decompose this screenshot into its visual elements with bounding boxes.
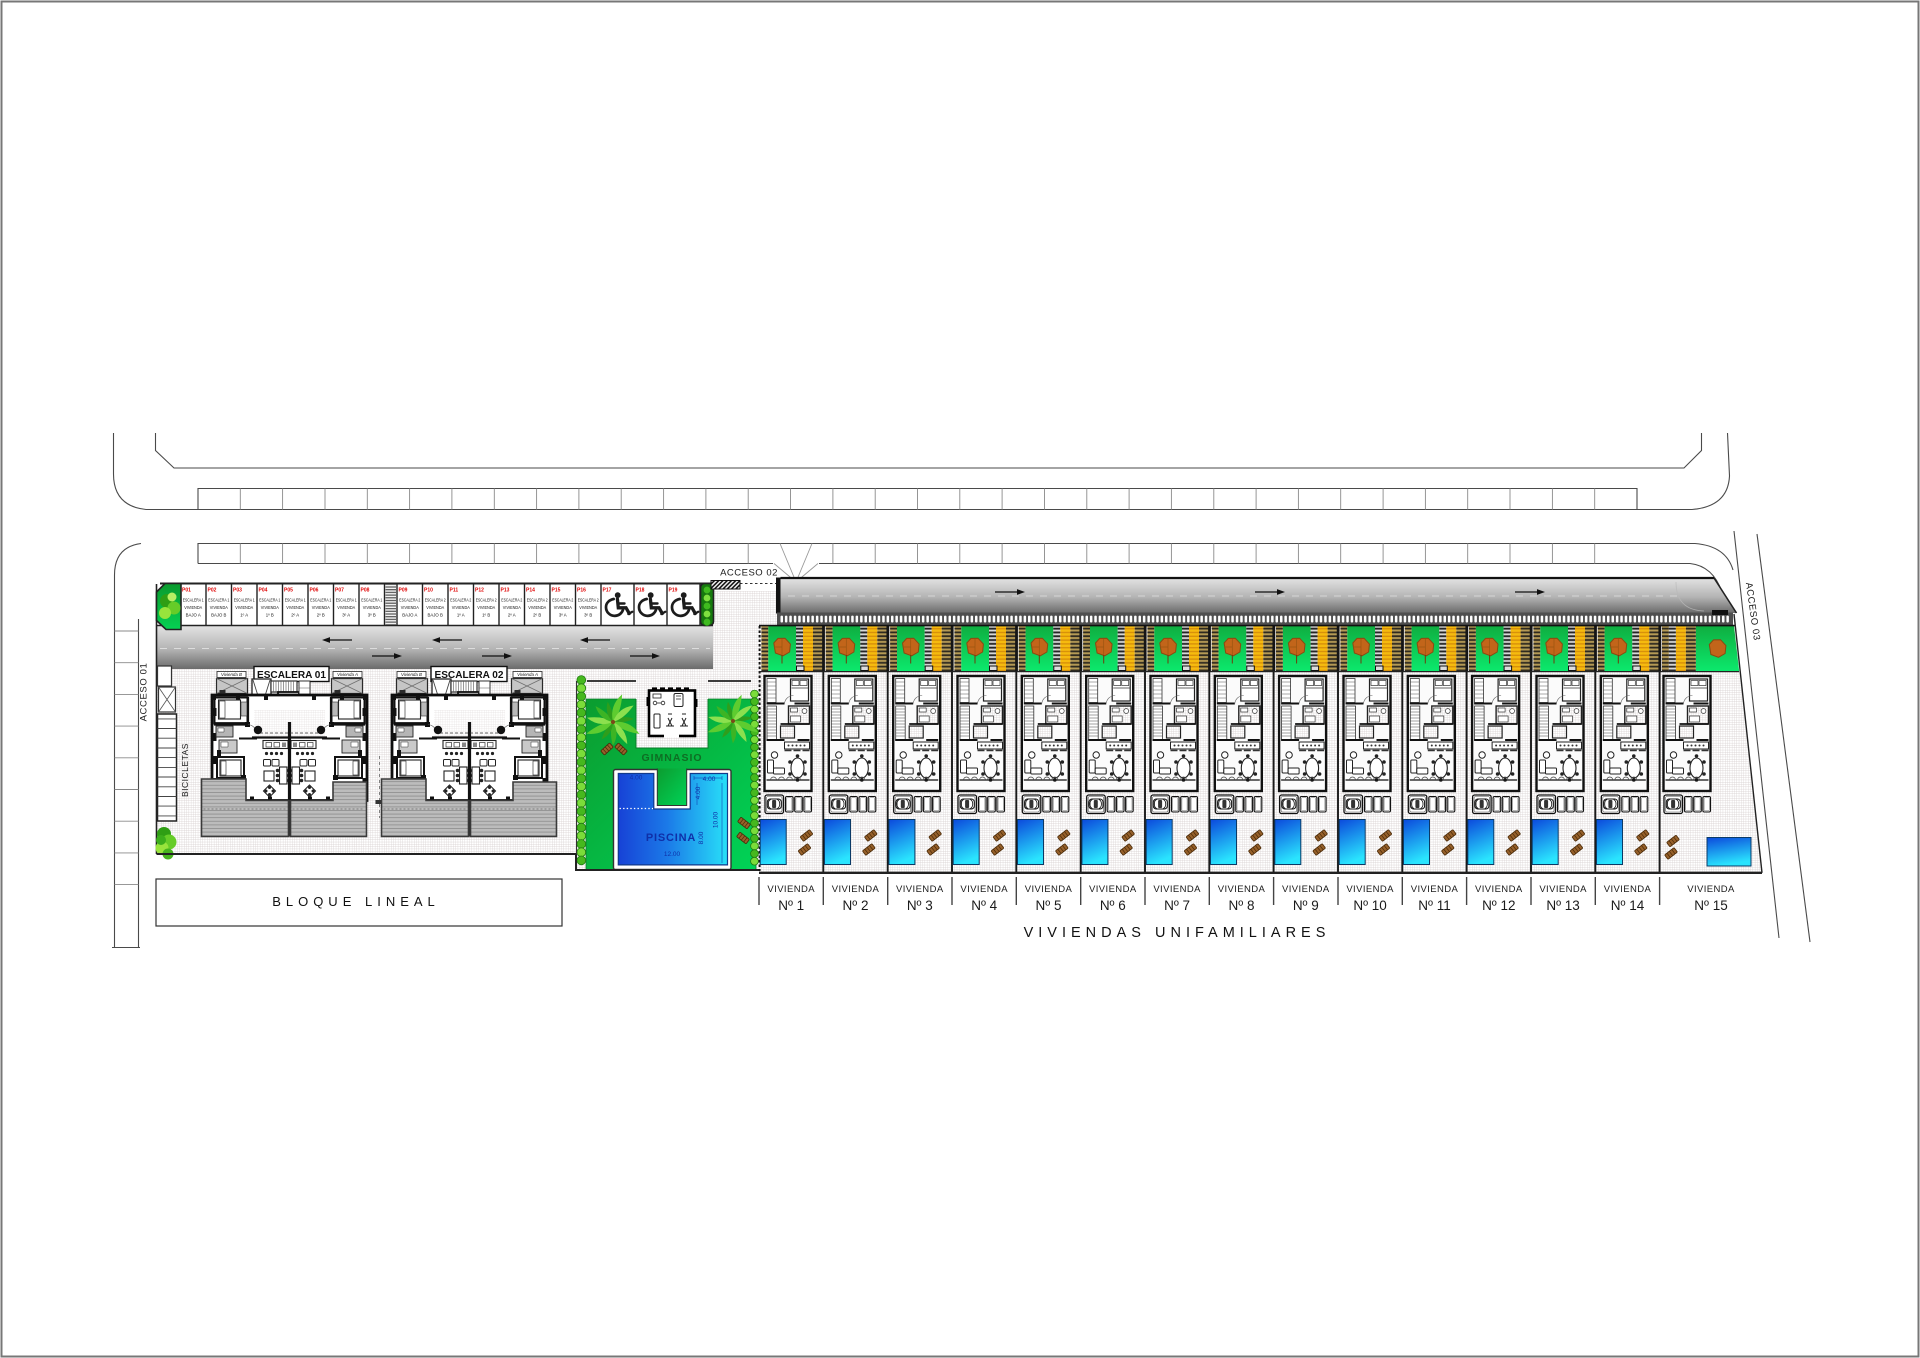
svg-text:1º B: 1º B (266, 613, 274, 618)
svg-text:VIVIENDA: VIVIENDA (503, 605, 521, 610)
svg-text:Nº 11: Nº 11 (1418, 898, 1450, 913)
svg-text:ESCALERA 1: ESCALERA 1 (336, 598, 357, 603)
svg-text:Vivienda A: Vivienda A (337, 672, 358, 677)
svg-text:ESCALERA 2: ESCALERA 2 (578, 598, 599, 603)
svg-text:VIVIENDA: VIVIENDA (184, 605, 202, 610)
svg-text:PISCINA: PISCINA (646, 832, 696, 844)
svg-text:ESCALERA 1: ESCALERA 1 (285, 598, 306, 603)
svg-text:Nº 5: Nº 5 (1036, 898, 1062, 913)
svg-text:VIVIENDA: VIVIENDA (452, 605, 470, 610)
svg-text:3º B: 3º B (584, 613, 592, 618)
svg-text:ESCALERA 1: ESCALERA 1 (259, 598, 280, 603)
svg-text:P16: P16 (577, 588, 586, 594)
svg-text:VIVIENDA: VIVIENDA (363, 605, 381, 610)
svg-text:VIVIENDA: VIVIENDA (261, 605, 279, 610)
svg-text:4.00: 4.00 (630, 775, 643, 782)
svg-text:P02: P02 (208, 588, 217, 594)
svg-text:VIVIENDA: VIVIENDA (528, 605, 546, 610)
svg-text:Vivienda B: Vivienda B (221, 672, 242, 677)
svg-text:VIVIENDA: VIVIENDA (312, 605, 330, 610)
svg-text:VIVIENDA: VIVIENDA (286, 605, 304, 610)
svg-text:ESCALERA 1: ESCALERA 1 (234, 598, 255, 603)
svg-text:VIVIENDA: VIVIENDA (1411, 884, 1459, 895)
svg-text:Nº 3: Nº 3 (907, 898, 933, 913)
svg-text:Nº 13: Nº 13 (1546, 898, 1579, 913)
svg-text:ESCALERA 2: ESCALERA 2 (425, 598, 446, 603)
svg-text:3º A: 3º A (559, 613, 567, 618)
svg-text:Nº 2: Nº 2 (843, 898, 869, 913)
svg-text:10.00: 10.00 (713, 811, 720, 828)
svg-text:VIVIENDA: VIVIENDA (554, 605, 572, 610)
svg-text:VIVIENDA: VIVIENDA (401, 605, 419, 610)
svg-text:ACCESO 02: ACCESO 02 (720, 568, 778, 579)
svg-text:P19: P19 (669, 588, 678, 594)
svg-text:VIVIENDA: VIVIENDA (767, 884, 815, 895)
svg-text:BICICLETAS: BICICLETAS (180, 743, 190, 797)
svg-text:BAJO B: BAJO B (428, 613, 443, 618)
svg-text:ESCALERA 2: ESCALERA 2 (527, 598, 548, 603)
svg-text:VIVIENDA: VIVIENDA (1687, 884, 1735, 895)
svg-text:VIVIENDA: VIVIENDA (426, 605, 444, 610)
svg-text:VIVIENDAS UNIFAMILIARES: VIVIENDAS UNIFAMILIARES (1024, 925, 1331, 941)
svg-text:P13: P13 (501, 588, 510, 594)
svg-text:P11: P11 (450, 588, 459, 594)
svg-text:P08: P08 (361, 588, 370, 594)
svg-text:Nº 14: Nº 14 (1611, 898, 1645, 913)
svg-text:BAJO A: BAJO A (402, 613, 417, 618)
svg-text:BLOQUE LINEAL: BLOQUE LINEAL (272, 894, 440, 909)
svg-text:P18: P18 (636, 588, 645, 594)
svg-text:VIVIENDA: VIVIENDA (1153, 884, 1201, 895)
svg-text:P07: P07 (335, 588, 344, 594)
svg-text:VIVIENDA: VIVIENDA (210, 605, 228, 610)
svg-text:Nº 12: Nº 12 (1482, 898, 1515, 913)
svg-text:Vivienda A: Vivienda A (517, 672, 538, 677)
svg-text:3º B: 3º B (368, 613, 376, 618)
svg-text:P04: P04 (259, 588, 268, 594)
svg-text:Nº 15: Nº 15 (1694, 898, 1727, 913)
svg-text:Nº 4: Nº 4 (971, 898, 997, 913)
svg-text:1º A: 1º A (240, 613, 248, 618)
svg-text:P01: P01 (182, 588, 191, 594)
svg-text:VIVIENDA: VIVIENDA (1089, 884, 1137, 895)
svg-text:2º B: 2º B (533, 613, 541, 618)
svg-text:Nº 10: Nº 10 (1353, 898, 1386, 913)
svg-text:Nº 8: Nº 8 (1229, 898, 1255, 913)
svg-text:ESCALERA 1: ESCALERA 1 (361, 598, 382, 603)
svg-text:VIVIENDA: VIVIENDA (1539, 884, 1587, 895)
svg-text:BAJO A: BAJO A (186, 613, 201, 618)
svg-text:P09: P09 (399, 588, 408, 594)
svg-text:4.00: 4.00 (703, 776, 716, 783)
svg-text:ACCESO 01: ACCESO 01 (139, 663, 150, 722)
svg-text:BAJO B: BAJO B (211, 613, 226, 618)
svg-text:VIVIENDA: VIVIENDA (337, 605, 355, 610)
svg-text:VIVIENDA: VIVIENDA (1346, 884, 1394, 895)
svg-text:ESCALERA 1: ESCALERA 1 (208, 598, 229, 603)
svg-text:12.00: 12.00 (664, 851, 681, 858)
svg-text:VIVIENDA: VIVIENDA (1475, 884, 1523, 895)
svg-text:ESCALERA 2: ESCALERA 2 (552, 598, 573, 603)
svg-text:P05: P05 (284, 588, 293, 594)
svg-text:2º A: 2º A (508, 613, 516, 618)
svg-text:VIVIENDA: VIVIENDA (1604, 884, 1652, 895)
svg-text:VIVIENDA: VIVIENDA (1282, 884, 1330, 895)
svg-text:8.00: 8.00 (698, 831, 705, 844)
svg-text:VIVIENDA: VIVIENDA (960, 884, 1008, 895)
svg-text:P12: P12 (475, 588, 484, 594)
svg-text:P03: P03 (233, 588, 242, 594)
svg-text:Nº 6: Nº 6 (1100, 898, 1126, 913)
svg-text:VIVIENDA: VIVIENDA (896, 884, 944, 895)
svg-text:Nº 7: Nº 7 (1164, 898, 1190, 913)
svg-text:VIVIENDA: VIVIENDA (1218, 884, 1266, 895)
svg-text:Vivienda B: Vivienda B (401, 672, 422, 677)
svg-text:P14: P14 (526, 588, 535, 594)
svg-text:Nº 1: Nº 1 (778, 898, 804, 913)
svg-text:ESCALERA 1: ESCALERA 1 (310, 598, 331, 603)
svg-text:VIVIENDA: VIVIENDA (235, 605, 253, 610)
svg-text:ESCALERA 2: ESCALERA 2 (501, 598, 522, 603)
svg-text:P06: P06 (310, 588, 319, 594)
svg-text:ESCALERA 2: ESCALERA 2 (399, 598, 420, 603)
svg-text:1º A: 1º A (457, 613, 465, 618)
svg-text:VIVIENDA: VIVIENDA (832, 884, 880, 895)
svg-text:Nº 9: Nº 9 (1293, 898, 1319, 913)
svg-text:ESCALERA 2: ESCALERA 2 (476, 598, 497, 603)
svg-text:2º B: 2º B (317, 613, 325, 618)
svg-text:P17: P17 (603, 588, 612, 594)
svg-text:2º A: 2º A (291, 613, 299, 618)
svg-text:ESCALERA 1: ESCALERA 1 (183, 598, 204, 603)
svg-text:4.00: 4.00 (695, 786, 702, 799)
svg-text:VIVIENDA: VIVIENDA (579, 605, 597, 610)
svg-text:VIVIENDA: VIVIENDA (477, 605, 495, 610)
svg-text:VIVIENDA: VIVIENDA (1025, 884, 1073, 895)
svg-text:GIMNASIO: GIMNASIO (641, 752, 702, 764)
svg-text:P15: P15 (552, 588, 561, 594)
svg-text:3º A: 3º A (342, 613, 350, 618)
svg-text:ESCALERA 2: ESCALERA 2 (450, 598, 471, 603)
svg-text:P10: P10 (424, 588, 433, 594)
svg-text:1º B: 1º B (482, 613, 490, 618)
